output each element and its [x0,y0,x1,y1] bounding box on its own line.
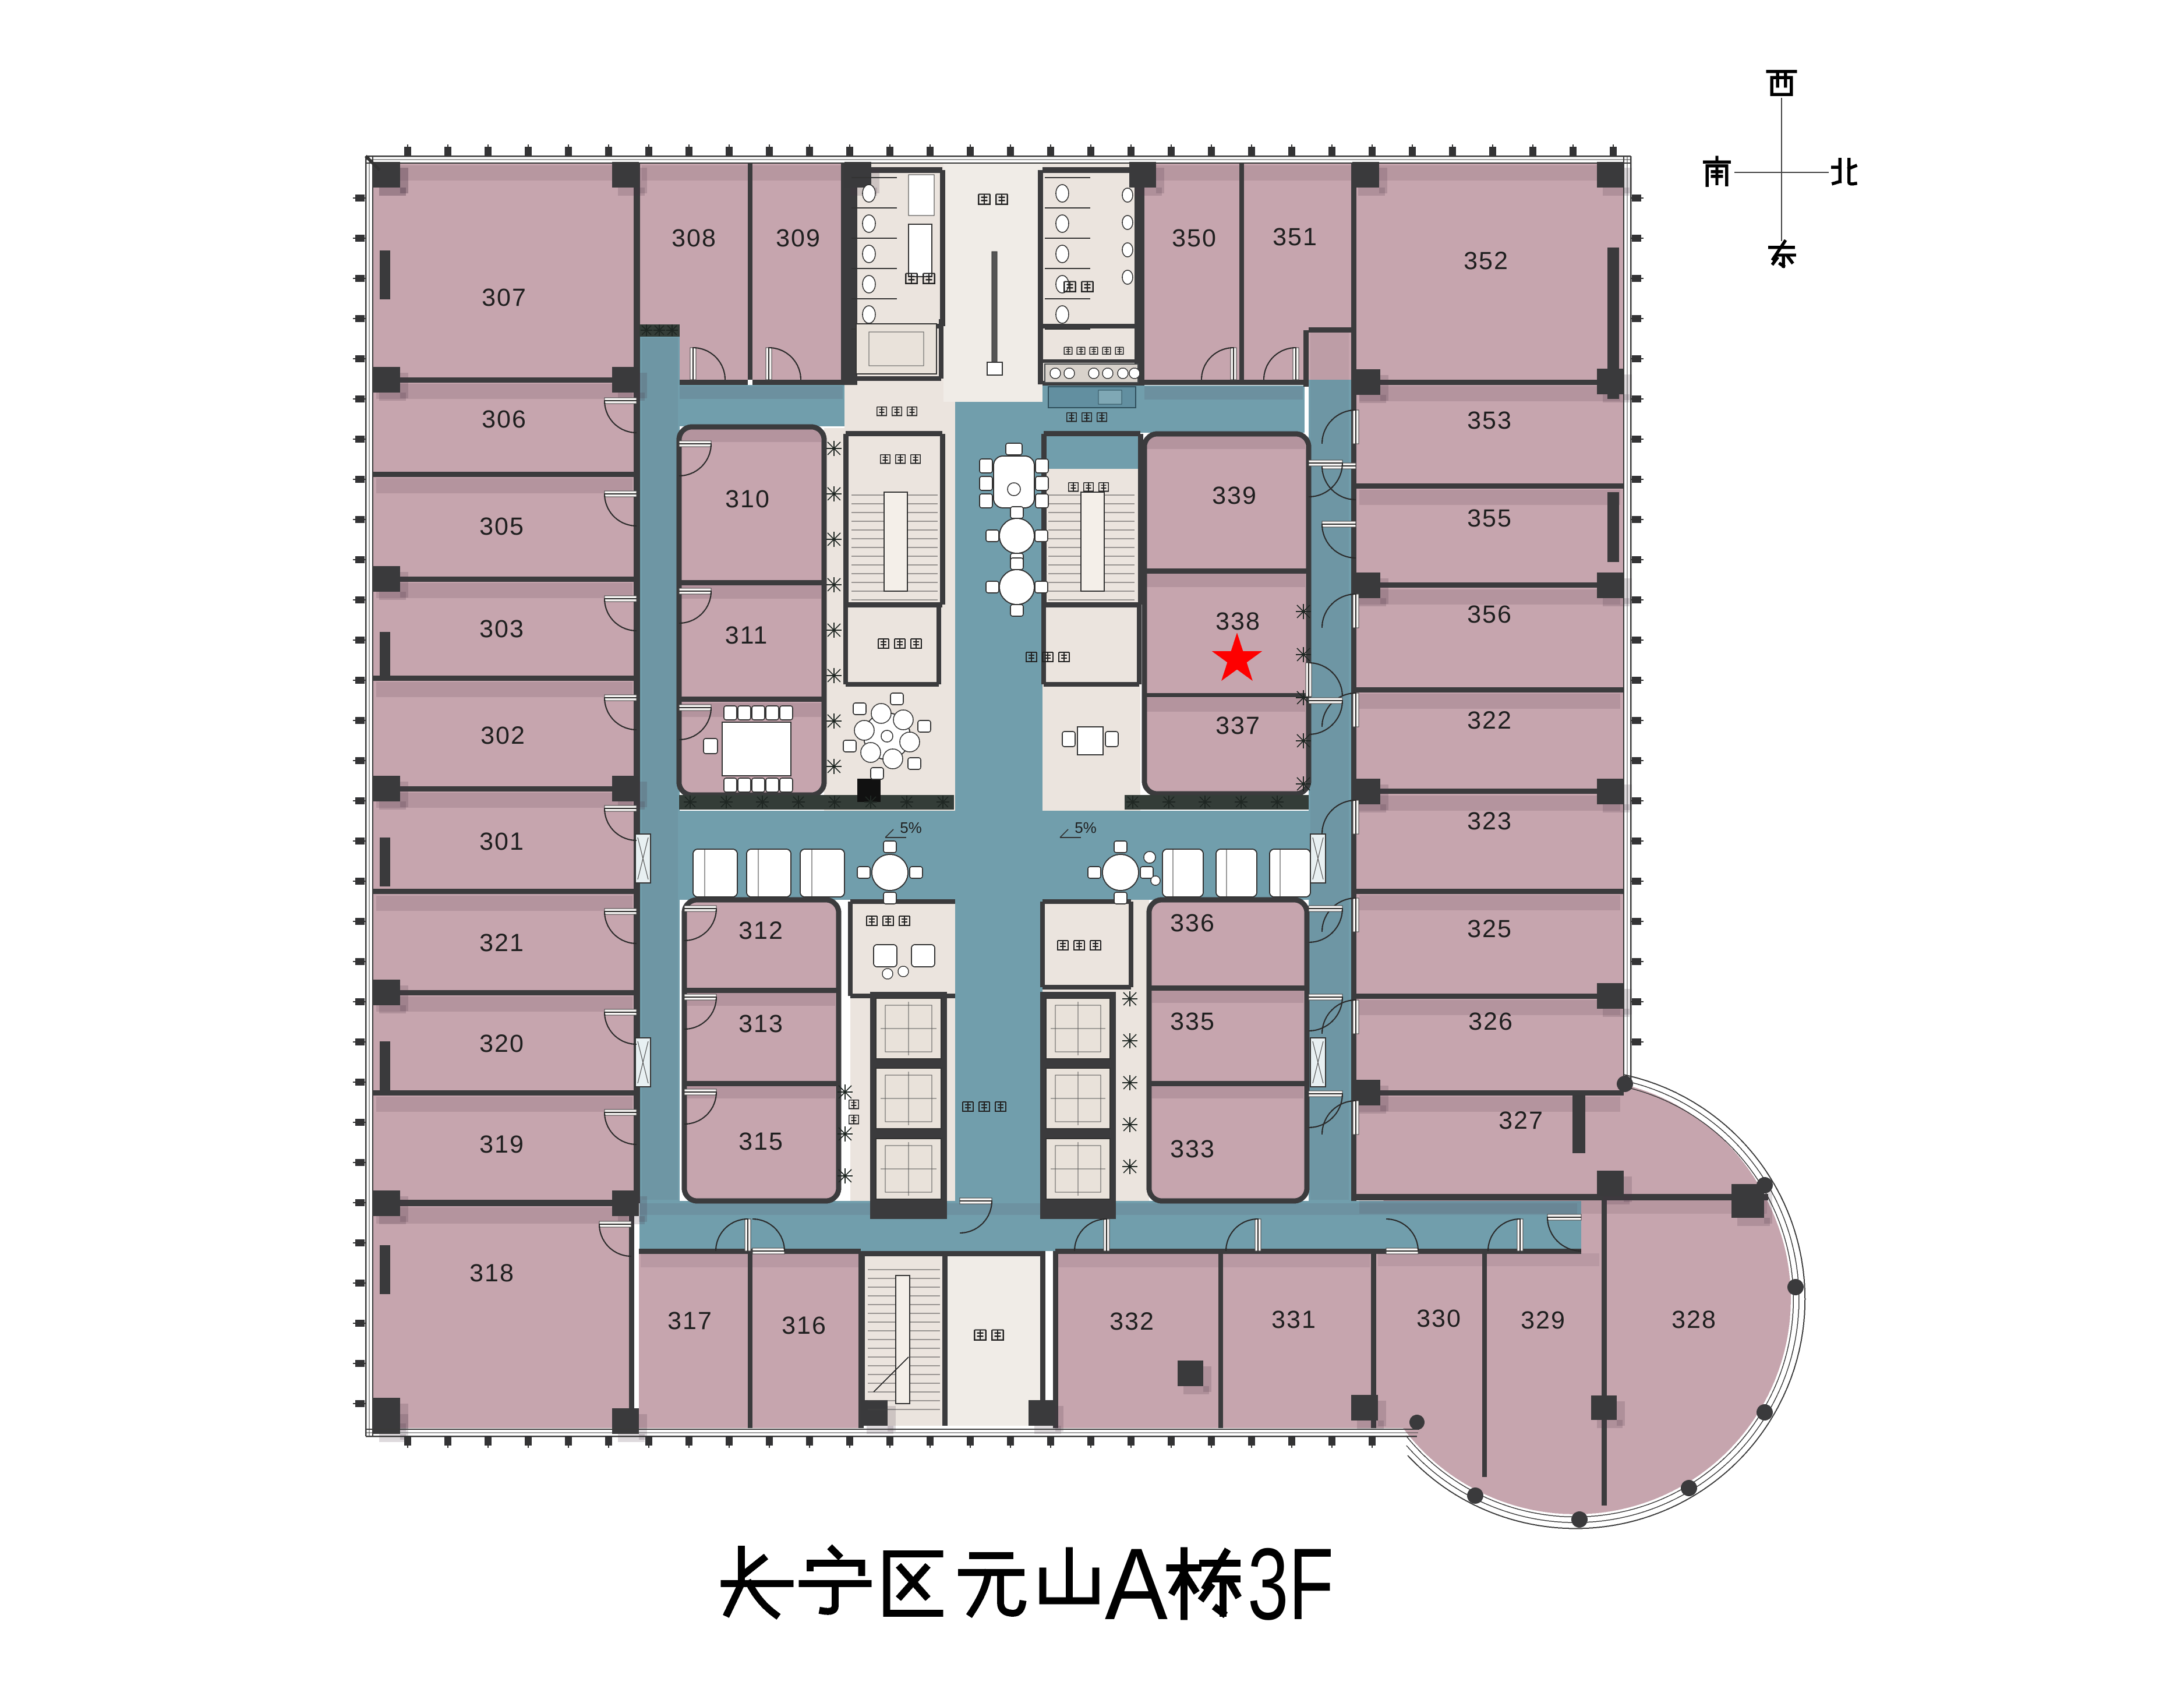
svg-text:319: 319 [479,1130,525,1158]
svg-text:339: 339 [1212,482,1257,510]
svg-text:352: 352 [1464,247,1509,275]
svg-text:335: 335 [1170,1008,1215,1036]
svg-text:323: 323 [1467,807,1512,835]
svg-text:302: 302 [480,722,526,750]
svg-text:356: 356 [1467,600,1512,628]
svg-text:5%: 5% [900,819,922,836]
svg-text:350: 350 [1172,224,1217,252]
svg-text:A: A [1105,1528,1168,1641]
svg-text:353: 353 [1467,407,1512,434]
svg-text:3F: 3F [1248,1528,1334,1641]
svg-text:355: 355 [1467,504,1512,532]
svg-text:322: 322 [1467,706,1512,734]
svg-text:351: 351 [1273,223,1318,251]
svg-text:313: 313 [738,1010,784,1038]
svg-text:312: 312 [738,917,784,945]
svg-text:306: 306 [482,405,527,433]
svg-text:336: 336 [1170,909,1215,937]
svg-text:309: 309 [776,224,821,252]
svg-text:338: 338 [1215,607,1261,635]
svg-text:307: 307 [482,284,527,312]
svg-text:311: 311 [725,621,769,649]
svg-text:303: 303 [479,615,525,643]
svg-text:318: 318 [469,1259,515,1287]
svg-text:301: 301 [479,828,525,856]
svg-text:333: 333 [1170,1135,1215,1163]
svg-text:316: 316 [782,1312,827,1340]
svg-text:332: 332 [1109,1308,1155,1335]
svg-text:328: 328 [1671,1306,1717,1334]
svg-text:330: 330 [1416,1305,1462,1333]
svg-text:331: 331 [1271,1306,1317,1334]
svg-text:321: 321 [479,929,525,957]
svg-text:326: 326 [1468,1008,1514,1036]
svg-text:310: 310 [725,485,771,513]
svg-text:327: 327 [1499,1107,1544,1135]
svg-text:305: 305 [479,513,525,540]
svg-text:329: 329 [1521,1306,1566,1334]
svg-text:317: 317 [667,1307,713,1335]
svg-text:315: 315 [738,1128,784,1156]
svg-text:337: 337 [1215,712,1261,740]
svg-text:325: 325 [1467,915,1512,943]
svg-text:320: 320 [479,1030,525,1058]
svg-text:5%: 5% [1075,819,1097,836]
svg-text:308: 308 [672,224,717,252]
